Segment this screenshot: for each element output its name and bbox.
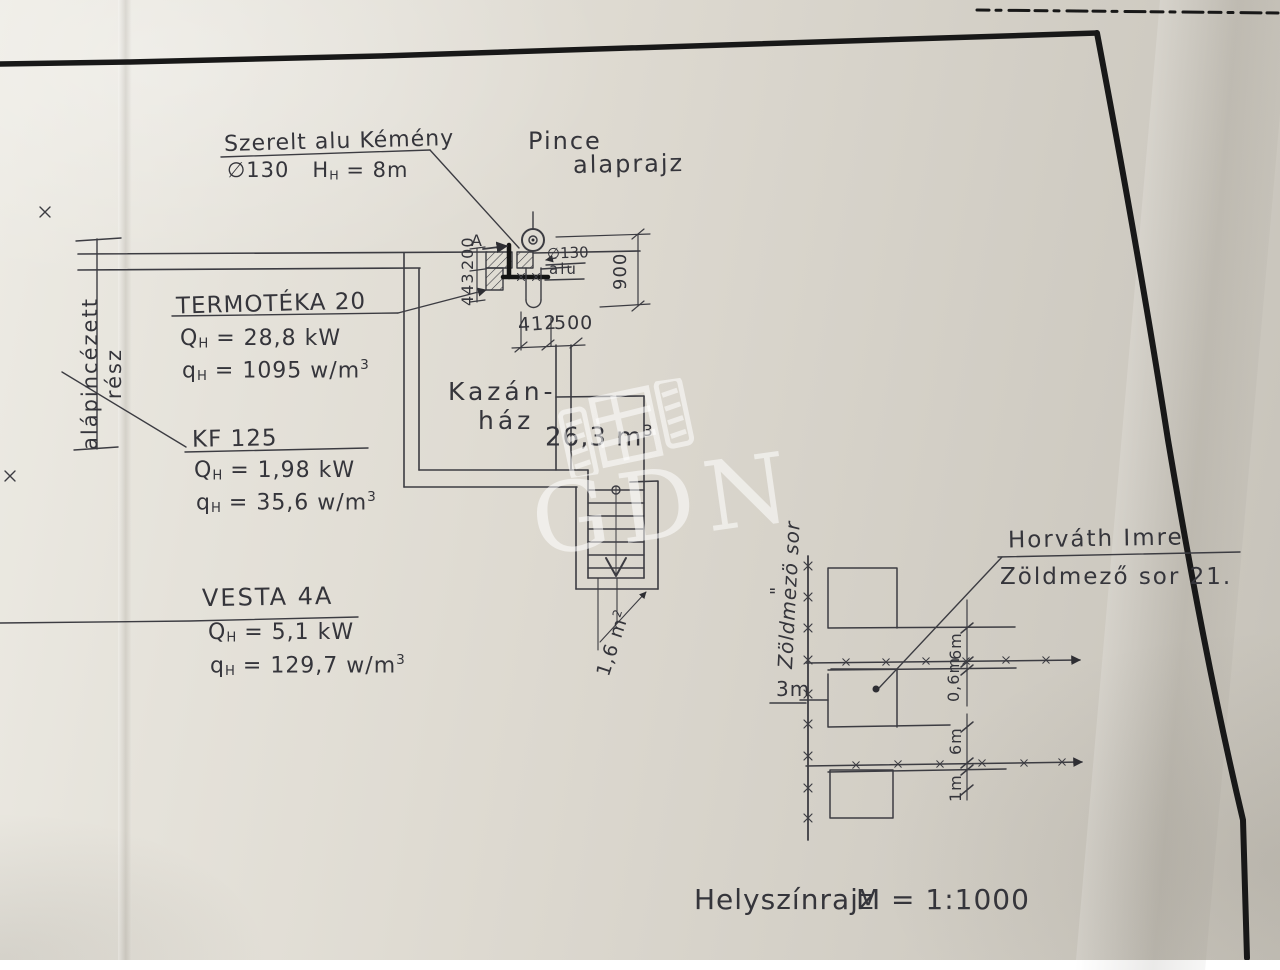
- left-basement-note: alápincézett rész: [78, 297, 126, 450]
- footer-scale: M = 1:1000: [856, 884, 1030, 916]
- boiler3-name: VESTA 4A: [202, 583, 334, 613]
- footer-title: Helyszínrajz: [694, 884, 875, 916]
- boiler1-q: QH = 28,8 kW: [180, 326, 341, 352]
- boiler3-qs: qH = 129,7 w/m3: [210, 653, 405, 679]
- dim-412: 412: [517, 313, 558, 338]
- chimney-diameter: ∅130: [227, 158, 289, 182]
- dim-500: 500: [554, 313, 593, 335]
- street-offset-3m: 3m: [776, 678, 810, 701]
- boiler2-q: QH = 1,98 kW: [194, 458, 355, 484]
- scanned-blueprint: Szerelt alu Kémény ∅130 HH = 8m Pince al…: [0, 0, 1280, 960]
- site-dim-1m: 1m: [947, 774, 965, 802]
- drawing-linework: [0, 0, 1280, 960]
- room-name-line1: Kazán-: [448, 378, 557, 407]
- dim-200: 200: [459, 236, 477, 270]
- owner-address: Zöldmező sor 21.: [1000, 564, 1232, 590]
- street-ditto-mark: ": [768, 586, 789, 595]
- boiler2-name: KF 125: [192, 425, 278, 453]
- dim-900: 900: [611, 253, 632, 290]
- boiler2-qs: qH = 35,6 w/m3: [196, 490, 376, 516]
- survey-cross-marks: [5, 207, 50, 481]
- room-name-line2: ház: [478, 407, 534, 436]
- boiler1-name: TERMOTÉKA 20: [176, 289, 367, 320]
- dim-443: 443: [459, 272, 477, 306]
- room-volume: 26,3 m3: [545, 422, 653, 454]
- boiler-room-walls: [78, 251, 658, 589]
- site-dim-6m-mid: 6m: [947, 727, 965, 755]
- note-chimney-line2: ∅130 HH = 8m: [227, 158, 408, 183]
- plan-title-line2: alaprajz: [573, 150, 685, 180]
- site-dim-6m-top: 6m: [947, 632, 965, 660]
- owner-name: Horváth Imre: [1008, 524, 1184, 554]
- site-plan: [770, 556, 1082, 840]
- flue-material-label: alu: [549, 261, 578, 278]
- boiler3-q: QH = 5,1 kW: [208, 620, 354, 646]
- site-dim-0-6m: 0,6m: [945, 657, 963, 702]
- boiler1-qs: qH = 1095 w/m3: [182, 358, 369, 384]
